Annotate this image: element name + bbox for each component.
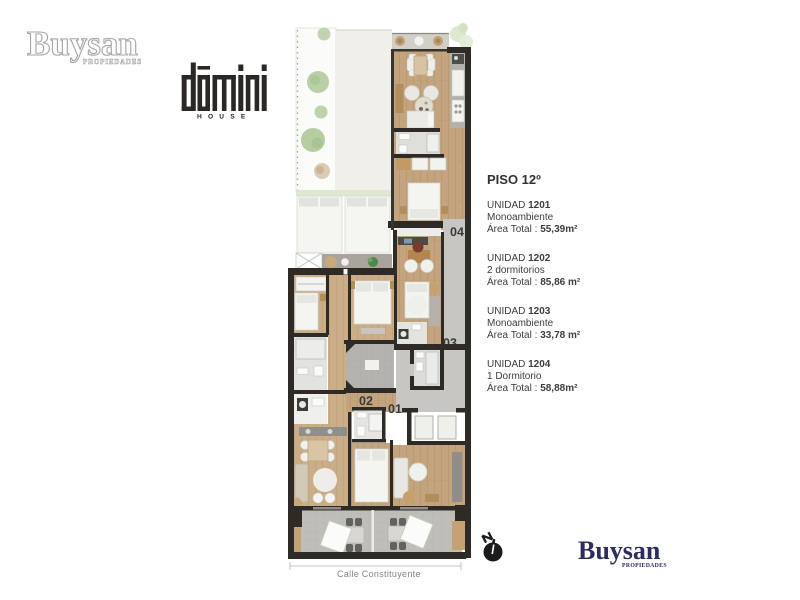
- svg-text:02: 02: [359, 394, 373, 408]
- svg-text:01: 01: [388, 402, 402, 416]
- svg-text:04: 04: [450, 225, 464, 239]
